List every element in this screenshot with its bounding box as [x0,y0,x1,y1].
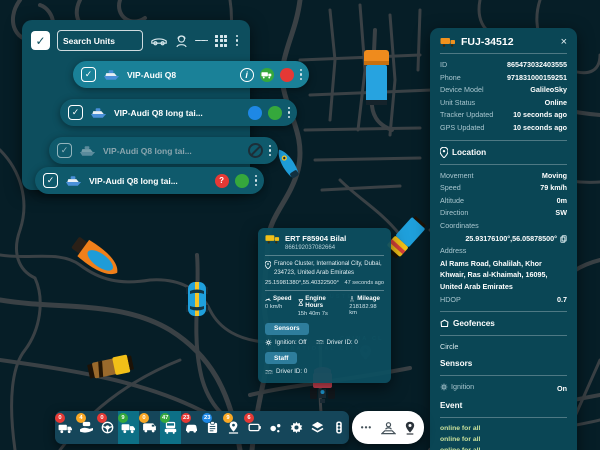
popup-staff-driver-id: Driver ID: 0 [276,367,307,376]
event-section-header: Event [440,399,567,412]
popup-imei: 866192037082664 [285,245,346,251]
geofence-item: Circle [440,341,567,354]
location-section-header: Location [440,146,567,159]
badge: 6 [244,413,254,423]
gear-icon [290,421,303,434]
staff-button[interactable]: Staff [265,352,297,364]
battery-icon [248,423,262,432]
badge: 4 [76,413,86,423]
boat-icon [89,107,108,119]
info-row: Tracker Updated10 seconds ago [440,109,567,122]
speed-icon [265,296,271,302]
toolbar-layers-button[interactable] [307,411,328,444]
popup-stat-engine-hours: Engine Hours 15h 40m 7s [298,295,344,317]
toolbar-hand-car-button[interactable]: 4 [76,411,97,444]
toolbar-truck-front-button[interactable]: 47 [160,411,181,444]
geofence-icon [440,319,449,328]
status-dot [268,106,282,120]
select-all-checkbox[interactable] [31,31,50,50]
unit-checkbox[interactable] [43,173,58,188]
popup-ignition: Ignition: Off [275,338,307,347]
badge: 0 [97,413,107,423]
gear-icon [265,339,272,346]
unit-menu-icon[interactable] [288,107,290,118]
unit-menu-icon[interactable] [300,69,302,80]
sort-icon[interactable] [195,38,208,43]
driver-id-icon [316,339,324,345]
engine-hours-icon [298,299,304,306]
van-icon [142,422,157,433]
location-row: Altitude0m [440,195,567,208]
divider [440,375,567,376]
search-units-box [57,30,143,51]
unit-checkbox[interactable] [81,67,96,82]
more-tools-button[interactable]: ••• [361,423,372,432]
bottom-toolbar: 0 4 0 9 0 47 23 23 [55,411,349,444]
toolbar-steering-button[interactable]: 0 [97,411,118,444]
unit-detail-panel: FUJ-34512 × ID865473032403555 Phone97183… [430,28,577,450]
hdop-row: HDOP0.7 [440,294,567,307]
status-dot [235,174,249,188]
toolbar-trucks-button[interactable]: 0 [55,411,76,444]
info-row: ID865473032403555 [440,59,567,72]
popup-title: ERT F85904 Bilal [285,234,346,243]
popup-address: France Cluster, International City, Duba… [274,260,384,277]
info-row: Device ModelGalileoSky [440,84,567,97]
map-tools-pill: ••• [352,411,424,444]
driver-icon[interactable] [175,33,188,48]
address-value: Al Rams Road, Ghalilah, Khor Khwair, Ras… [440,258,567,292]
marker-blue-car[interactable] [186,281,208,317]
copy-icon[interactable] [560,235,567,243]
gear-icon [440,383,448,391]
popup-stat-speed: Speed 0 km/h [265,295,292,317]
badge: 0 [139,413,149,423]
badge: 0 [55,413,65,423]
coordinates-label: Coordinates [440,220,479,233]
address-label: Address [440,245,466,258]
person-pin-icon[interactable] [381,421,396,435]
unit-menu-icon[interactable] [255,175,257,186]
cluster-icon [269,422,282,434]
unit-menu-icon[interactable] [269,145,271,156]
info-row: GPS Updated10 seconds ago [440,122,567,135]
unit-name: VIP-Audi Q8 long tai... [103,146,242,156]
boat-icon [78,145,97,157]
toolbar-car-button[interactable]: 23 [181,411,202,444]
search-units-input[interactable] [58,36,142,46]
steering-wheel-icon [101,421,114,434]
unit-name: VIP-Audi Q8 long tai... [89,176,209,186]
toolbar-cluster-button[interactable] [265,411,286,444]
popup-driver-id: Driver ID: 0 [327,338,358,347]
divider [440,53,567,54]
popup-coordinates: 25.15981380°,55.40322500° [265,280,339,286]
sensors-button[interactable]: Sensors [265,323,309,335]
location-row: MovementMoving [440,170,567,183]
toolbar-report-button[interactable]: 23 [202,411,223,444]
toolbar-settings-button[interactable] [286,411,307,444]
event-item: online for all [440,445,567,450]
truck-icon [440,37,456,47]
unit-popup: ERT F85904 Bilal 866192037082664 France … [258,228,391,383]
grid-view-icon[interactable] [215,35,227,47]
blocked-icon [248,143,263,158]
clipboard-icon [207,421,218,434]
truck-icon [121,422,136,434]
coordinates-value: 25.93176100°,56.05878500° [465,233,557,245]
vehicle-filter-icon[interactable] [150,35,168,46]
status-vehicle-icon [260,68,274,82]
unit-row-1[interactable]: VIP-Audi Q8 i [73,61,309,88]
toolbar-geofence-button[interactable]: 9 [223,411,244,444]
status-dot [280,68,294,82]
truck-icon [265,234,280,244]
divider [440,140,567,141]
event-item: online for all [440,434,567,445]
traffic-light-icon [335,421,343,434]
divider [440,417,567,418]
truck-icon [58,422,73,434]
unit-row-3[interactable]: VIP-Audi Q8 long tai... [49,137,278,164]
toolbar-van-button[interactable]: 0 [139,411,160,444]
car-icon [184,422,199,433]
close-icon[interactable]: × [561,37,567,47]
badge: 9 [223,413,233,423]
status-dot [248,106,262,120]
boat-icon [102,69,121,81]
info-icon[interactable]: i [240,68,254,82]
truck-front-icon [164,421,177,434]
popup-stat-mileage: Mileage 218182.98 km [349,295,384,317]
location-row: DirectionSW [440,207,567,220]
geofences-section-header: Geofences [440,317,567,330]
divider [265,255,384,256]
event-item: online for all [440,423,567,434]
divider [440,335,567,336]
sensors-section-header: Sensors [440,357,567,370]
location-row: Speed79 km/h [440,182,567,195]
toolbar-delivery-truck-button[interactable]: 9 [118,411,139,444]
toolbar-device-button[interactable]: 6 [244,411,265,444]
location-pin-icon [265,261,271,269]
popup-updated: 47 seconds ago [345,280,385,286]
unit-name: VIP-Audi Q8 [127,70,234,80]
layers-icon [311,421,324,434]
unit-title: FUJ-34512 [461,36,556,48]
panel-menu-icon[interactable] [236,35,238,46]
unit-checkbox[interactable] [68,105,83,120]
divider [440,164,567,165]
badge: 9 [118,413,128,423]
unit-name: VIP-Audi Q8 long tai... [114,108,242,118]
divider [265,290,384,291]
map-view: CLUSTER INTERNATIONAL CITY CHINA CL [0,0,600,450]
map-pin-icon [228,421,239,434]
divider [440,311,567,312]
info-row: Unit StatusOnline [440,97,567,110]
boat-icon [64,175,83,187]
alert-icon[interactable]: ? [215,174,229,188]
toolbar-traffic-button[interactable] [328,411,349,444]
location-pin-icon[interactable] [405,421,415,435]
marker-blue-truck[interactable] [363,50,390,107]
unit-list-header [22,20,250,51]
unit-checkbox[interactable] [57,143,72,158]
info-row: Phone971831000159251 [440,72,567,85]
unit-row-4[interactable]: VIP-Audi Q8 long tai... ? [35,167,264,194]
location-pin-icon [440,147,448,158]
mileage-icon [349,295,355,302]
driver-id-icon [265,369,273,375]
ignition-row: Ignition On [440,381,567,396]
unit-row-2[interactable]: VIP-Audi Q8 long tai... [60,99,297,126]
